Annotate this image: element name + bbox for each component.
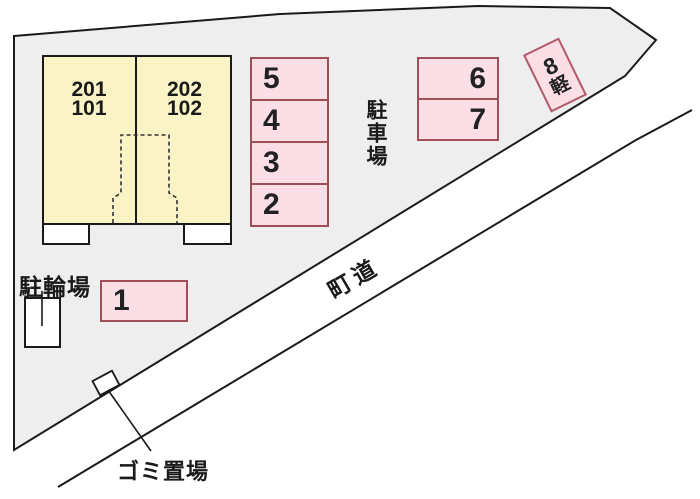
parking-spot-4: 4	[250, 99, 329, 143]
entrance-porch-left	[42, 223, 90, 245]
spot-number: 2	[263, 188, 280, 222]
parking-area-label: 駐車場	[360, 99, 390, 168]
room-unit-201-101: 201 101	[42, 80, 136, 118]
spot-number: 6	[469, 62, 486, 96]
parking-spot-1: 1	[100, 280, 188, 322]
parking-spot-2: 2	[250, 183, 329, 227]
room-unit-202-102: 202 102	[137, 80, 232, 118]
parking-spot-7: 7	[417, 98, 499, 141]
spot-number: 5	[263, 62, 280, 96]
spot-number: 1	[113, 284, 130, 318]
site-plan: 201 101 202 102 5 4 3 2 6 7 1 8 軽 駐車場 駐輪…	[0, 0, 700, 499]
room-number-lower: 101	[42, 99, 136, 118]
garbage-area-label: ゴミ置場	[117, 454, 209, 486]
entrance-porch-right	[183, 223, 232, 245]
room-number-lower: 102	[137, 99, 232, 118]
spot-number: 7	[469, 103, 486, 137]
spot-number: 3	[263, 146, 280, 180]
bicycle-parking-label: 駐輪場	[19, 268, 91, 302]
spot-number: 4	[263, 104, 280, 138]
parking-spot-6: 6	[417, 57, 499, 100]
parking-spot-3: 3	[250, 141, 329, 185]
parking-spot-5: 5	[250, 57, 329, 101]
